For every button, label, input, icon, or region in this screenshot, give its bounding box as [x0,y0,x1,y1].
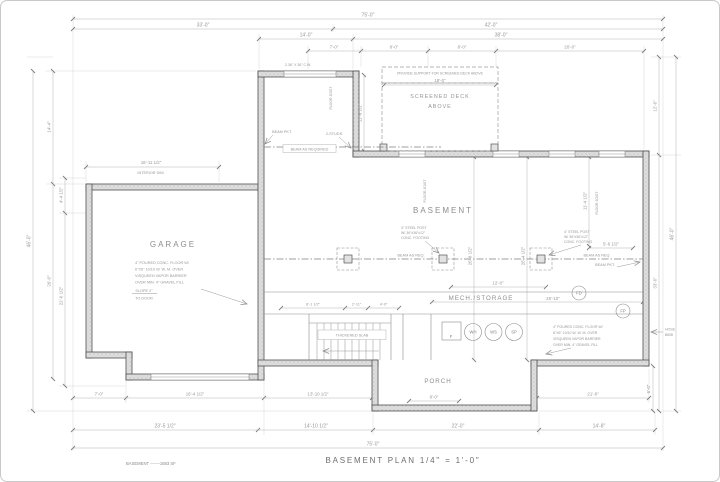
note-floor-joist-2: FLOOR JOIST [423,179,427,203]
dim-int-projection: 11'-6 1/2" [358,103,363,122]
svg-text:4" POURED CONC. FLOOR W/: 4" POURED CONC. FLOOR W/ [553,325,603,329]
label-furnace: F [450,334,453,339]
svg-text:THICKENED SLAB: THICKENED SLAB [336,334,369,338]
note-beam-as-req-right: BEAM AS REQ. [583,254,610,258]
dim-porch-right-height: 6'-0" [646,384,651,393]
svg-text:BIBB: BIBB [665,333,674,337]
room-label-screened-deck: SCREENED DECK [410,94,469,100]
note-studs: 2-STUDS [326,132,343,136]
svg-text:VISQUEEN VAPOR BARRIER: VISQUEEN VAPOR BARRIER [553,337,601,341]
label-water-softener: WS [490,330,497,335]
note-hose-bibb: HOSE BIBB [665,328,676,338]
svg-text:OVER MIN. 4" GRAVEL FILL: OVER MIN. 4" GRAVEL FILL [553,343,598,347]
dim-overall-height-right: 46'-0" [670,227,676,240]
dim-int-basement-a: 26'-8 1/2" [468,246,473,265]
dim-bottom2-a: 23'-5 1/2" [154,424,175,430]
dim-int-mech-b: 26'-10" [546,296,560,301]
window [284,71,336,77]
dim-overall-width-top: 75'-0" [362,13,375,19]
note-floor-joist-3: FLOOR JOIST [595,191,599,215]
drawing-title: BASEMENT PLAN 1/4" = 1'-0" [325,456,480,465]
window [399,151,425,157]
dim-top-seg3: 8'-0" [458,45,467,50]
note-beam-as-req-left: BEAM AS REQ. [397,254,424,258]
window [549,151,575,157]
dim-int-mech-a: 12'-0" [492,281,504,286]
garage-door-opening [151,374,249,380]
steel-post [344,255,352,263]
dim-bottom-right-of-porch: 21'-8" [587,392,599,397]
dim-top-projection: 14'-0" [300,33,313,39]
svg-text:VISQUEEN VAPOR BARRIER: VISQUEEN VAPOR BARRIER [135,274,187,278]
dim-right-upper: 12'-6" [653,100,658,112]
svg-text:HOSE: HOSE [665,328,676,332]
svg-text:W/ 36"x36"x12": W/ 36"x36"x12" [401,231,426,235]
label-interior-dim: INTERIOR DIM. [137,171,164,175]
label-fireplace: FP [620,309,626,314]
window [599,151,625,157]
label-floor-drain: FD [576,291,582,296]
dim-int-post-offset: 5'-6 1/2" [603,242,620,247]
dim-bottom2-d: 14'-8" [593,424,606,430]
dim-top-right: 42'-0" [485,23,498,29]
dim-overall-width-bottom: 75'-0" [367,442,380,448]
floor-plan-drawing: 75'-0" 33'-0" 42'-0" 14'-0" 38'-0" 7'-0"… [1,1,720,482]
dim-deck-width: 18'-0" [434,78,446,83]
label-sump-pump: SP [511,330,517,335]
note-beam-as-required: BEAM AS REQUIRED [283,145,336,153]
room-label-mech-storage: MECH./STORAGE [449,295,514,302]
svg-text:OVER MIN. 4" GRAVEL FILL: OVER MIN. 4" GRAVEL FILL [135,281,184,285]
dim-garage-interior-width: 16'-11 1/2" [141,160,162,165]
room-label-porch: PORCH [424,378,451,385]
legend-area: BASEMENT -------1683 SF [126,461,176,466]
svg-text:6"X6" 10/10 W. W. M. OVER: 6"X6" 10/10 W. W. M. OVER [135,268,183,272]
svg-text:6"X6" 10/10 W. W. M. OVER: 6"X6" 10/10 W. W. M. OVER [553,331,598,335]
dim-left-inner-b: 22'-0 1/2" [59,286,64,305]
note-beam-pkt-left: BEAM PKT. [272,130,292,134]
dim-porch-inner: 8'-0" [430,395,439,400]
note-slope-2: TO DOOR [135,297,153,301]
note-floor-joist-1: FLOOR JOIST [329,86,333,110]
dim-int-stair-a: 8'-1 1/2" [306,303,321,307]
note-conc-floor-basement: 4" POURED CONC. FLOOR W/ 6"X6" 10/10 W. … [553,325,603,347]
dim-int-basement-b: 26'-4 1/2" [521,246,526,265]
svg-text:CONC. FOOTING: CONC. FOOTING [564,240,592,244]
dim-int-stair-b: 2'-11" [352,303,362,307]
note-slope-1: SLOPE 2" [135,289,153,293]
dim-bottom-garage: 16'-4 1/2" [186,392,205,397]
dim-top-seg2: 8'-0" [390,45,399,50]
basement-plan-sheet: 75'-0" 33'-0" 42'-0" 14'-0" 38'-0" 7'-0"… [0,0,720,482]
dim-bottom-notch: 7'-0" [95,392,104,397]
note-steel-post-left: 4" STEEL POST W/ 36"x36"x12" CONC. FOOTI… [401,226,429,240]
dim-int-stair-c: 4'-0" [380,303,388,307]
svg-text:4" STEEL POST: 4" STEEL POST [564,230,590,234]
dim-int-right-bay: 11'-4 1/2" [583,191,588,210]
dim-left-inner-a: 4'-4 1/2" [59,187,64,204]
svg-text:BEAM AS REQUIRED: BEAM AS REQUIRED [291,148,329,152]
dim-right-lower: 33'-6" [653,277,658,289]
dim-top-seg1: 7'-0" [330,45,339,50]
dim-overall-height-left: 46'-0" [27,234,33,247]
room-label-basement: BASEMENT [413,206,473,215]
room-label-garage: GARAGE [150,240,196,249]
dim-bottom2-c: 22'-0" [452,424,465,430]
svg-text:W/ 36"x36"x12": W/ 36"x36"x12" [564,235,589,239]
svg-text:CONC. FOOTING: CONC. FOOTING [401,236,429,240]
svg-text:4" STEEL POST: 4" STEEL POST [401,226,427,230]
window [493,151,519,157]
dim-top-left: 33'-0" [197,23,210,29]
steel-post [537,255,545,263]
dim-top-main: 38'-0" [495,33,508,39]
note-beam-pkt-right: BEAM PKT. [595,263,615,267]
dim-left-garage-height: 26'-0" [47,275,52,287]
label-water-heater: WH [470,330,477,335]
note-conc-floor-garage: 4" POURED CONC. FLOOR W/ 6"X6" 10/10 W. … [135,261,190,285]
leader-lines [201,135,663,354]
dim-bottom2-b: 14'-10 1/2" [304,424,328,430]
note-deck-support: PROVIDE SUPPORT FOR SCREENED DECK ABOVE [397,72,484,76]
dim-bottom-left-of-porch: 13'-10 1/2" [308,392,329,397]
dim-left-upper: 14'-4" [47,121,52,133]
svg-text:4" POURED CONC. FLOOR W/: 4" POURED CONC. FLOOR W/ [135,261,190,265]
steel-post [439,255,447,263]
note-steel-post-right: 4" STEEL POST W/ 36"x36"x12" CONC. FOOTI… [564,230,592,244]
note-window-callout: 2-36" X 36" C.W. [285,63,311,67]
room-label-screened-deck-above: ABOVE [428,104,452,110]
note-thickened-slab: THICKENED SLAB [318,330,386,340]
dim-top-seg4: 20'-0" [564,45,576,50]
stairs [317,323,380,360]
